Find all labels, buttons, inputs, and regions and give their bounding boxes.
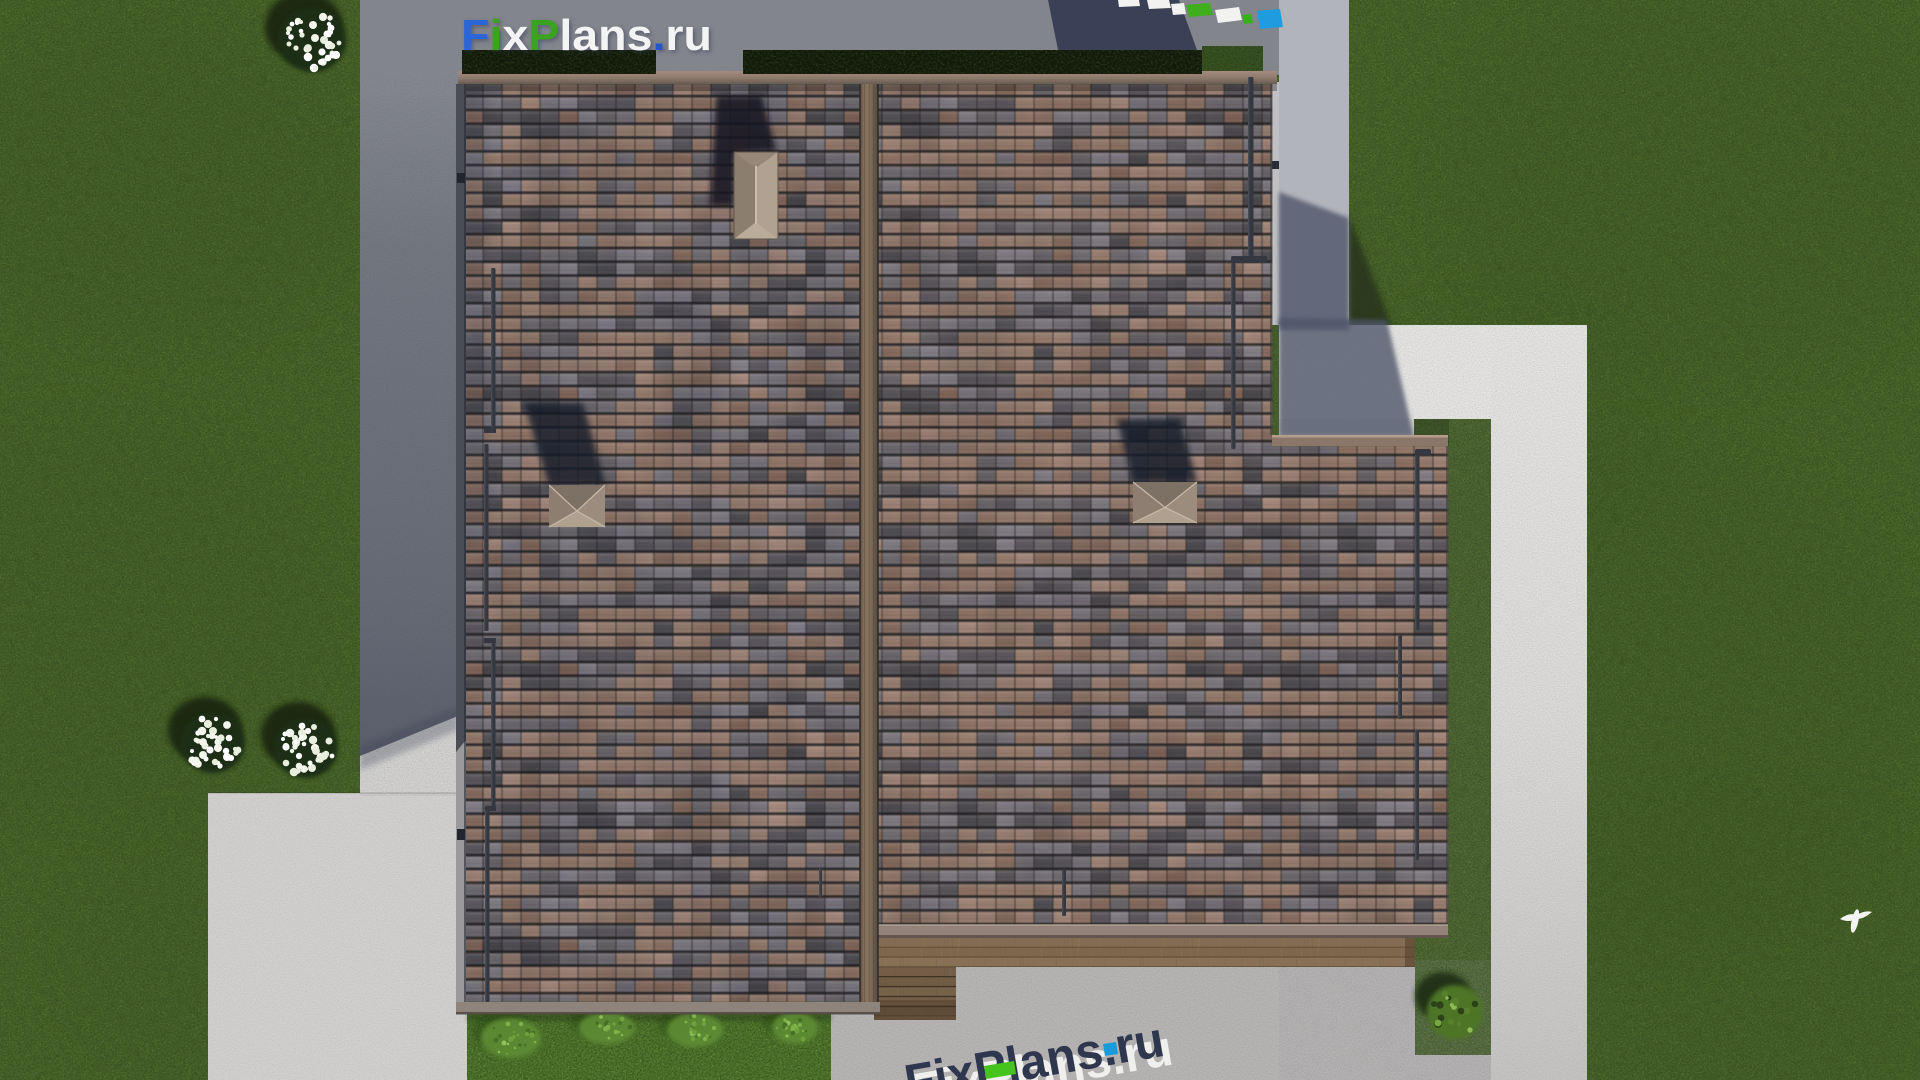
svg-text:FixPlans.ru: FixPlans.ru [461, 11, 712, 60]
